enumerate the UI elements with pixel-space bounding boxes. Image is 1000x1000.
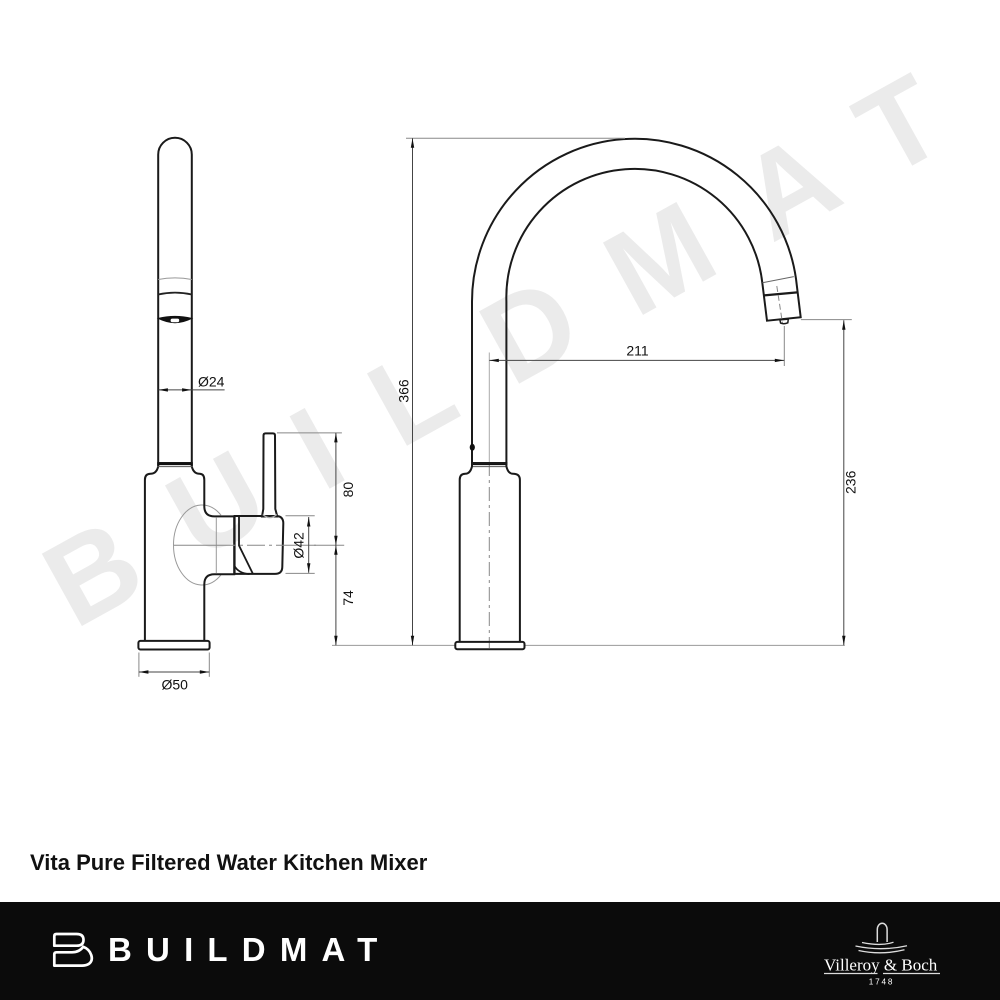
svg-text:74: 74 — [340, 590, 356, 606]
svg-text:Villeroy & Boch: Villeroy & Boch — [824, 956, 938, 975]
svg-text:366: 366 — [395, 379, 411, 403]
svg-text:Ø42: Ø42 — [291, 532, 307, 559]
svg-text:Ø24: Ø24 — [198, 373, 225, 389]
svg-text:Ø50: Ø50 — [161, 676, 188, 692]
svg-text:211: 211 — [626, 342, 649, 358]
svg-text:80: 80 — [340, 482, 356, 498]
svg-text:1748: 1748 — [869, 978, 894, 987]
svg-text:236: 236 — [843, 470, 859, 494]
